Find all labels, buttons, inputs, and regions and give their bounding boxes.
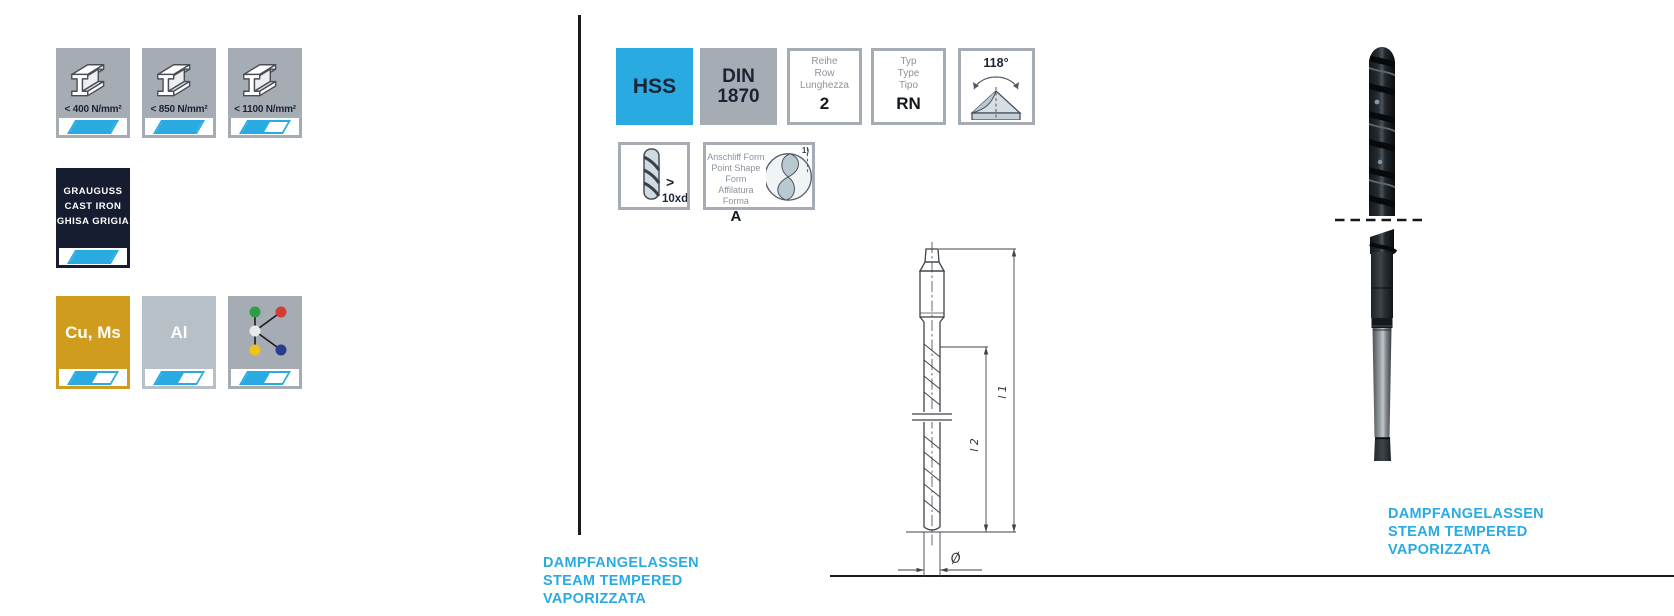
series-label-it: Lunghezza (790, 80, 859, 92)
suitability-mark (153, 120, 205, 134)
point-angle-badge: 118° (958, 48, 1035, 125)
material-grade-label: HSS (633, 75, 676, 99)
copper-brass-label: Cu, Ms (56, 296, 130, 369)
i-beam-icon (150, 55, 208, 101)
steel-grade-label: < 400 N/mm² (56, 104, 130, 115)
catalog-page: < 400 N/mm² < 850 N/mm² (0, 0, 1674, 616)
point-shape-badge: Anschliff Form Point Shape Form Affilatu… (703, 142, 815, 210)
suitability-mark (67, 120, 119, 134)
suitability-strip (59, 369, 127, 386)
drill-product-photo (1330, 40, 1440, 470)
aluminium-label: Al (142, 296, 216, 369)
suitability-mark (239, 120, 291, 134)
dim-label-l2: l 2 (968, 438, 981, 452)
i-beam-icon (236, 55, 294, 101)
suitability-mark (153, 371, 205, 385)
cast-iron-label-it: GHISA GRIGIA (56, 214, 130, 229)
type-label-it: Tipo (874, 80, 943, 92)
type-labels: Typ Type Tipo (874, 56, 943, 92)
suitability-strip (59, 118, 127, 135)
suitability-mark (67, 371, 119, 385)
steel-grade-label: < 1100 N/mm² (228, 104, 302, 115)
material-steel-850: < 850 N/mm² (142, 48, 216, 138)
drill-depth-badge: > 10xd (618, 142, 690, 210)
suitability-strip (231, 369, 299, 386)
finish-line-de: DAMPFANGELASSEN (543, 554, 699, 572)
suitability-mark (67, 250, 119, 264)
material-copper-brass: Cu, Ms (56, 296, 130, 389)
type-label-en: Type (874, 68, 943, 80)
material-group-diagram-icon (237, 302, 293, 360)
point-angle-value: 118° (983, 56, 1008, 70)
point-shape-label-de: Anschliff Form (706, 152, 766, 163)
din-number: 1870 (717, 87, 759, 107)
suitability-mark (239, 371, 291, 385)
finish-line-en: STEAM TEMPERED (543, 572, 699, 590)
din-standard-badge: DIN 1870 (700, 48, 777, 125)
point-angle-icon: 118° (962, 51, 1031, 120)
point-shape-labels: Anschliff Form Point Shape Form Affilatu… (706, 145, 766, 207)
dim-label-diameter: Ø (948, 550, 964, 568)
din-label: DIN (722, 67, 755, 87)
finish-line-it: VAPORIZZATA (1388, 541, 1544, 559)
series-label-en: Row (790, 68, 859, 80)
depth-ratio-value: 10xd (662, 193, 687, 205)
footnote-marker: 1) (802, 146, 809, 155)
suitability-strip (231, 118, 299, 135)
dim-label-l1: l 1 (996, 385, 1009, 399)
type-value: RN (874, 94, 943, 114)
point-shape-label-it: Affilatura Forma (706, 185, 766, 207)
i-beam-icon (64, 55, 122, 101)
type-label-de: Typ (874, 56, 943, 68)
series-labels: Reihe Row Lunghezza (790, 56, 859, 92)
cast-iron-labels: GRAUGUSS CAST IRON GHISA GRIGIA (56, 168, 130, 229)
material-steel-1100: < 1100 N/mm² (228, 48, 302, 138)
suitability-strip (145, 118, 213, 135)
series-value: 2 (790, 94, 859, 114)
finish-line-en: STEAM TEMPERED (1388, 523, 1544, 541)
material-steel-400: < 400 N/mm² (56, 48, 130, 138)
point-shape-label-en: Point Shape Form (706, 163, 766, 185)
finish-line-it: VAPORIZZATA (543, 590, 699, 608)
finish-line-de: DAMPFANGELASSEN (1388, 505, 1544, 523)
series-badge: Reihe Row Lunghezza 2 (787, 48, 862, 125)
steel-grade-label: < 850 N/mm² (142, 104, 216, 115)
suitability-strip (145, 369, 213, 386)
drill-depth-icon: > 10xd (621, 145, 687, 207)
finish-text-right: DAMPFANGELASSEN STEAM TEMPERED VAPORIZZA… (1388, 505, 1544, 559)
cast-iron-label-de: GRAUGUSS (56, 184, 130, 199)
point-shape-value: A (706, 208, 766, 225)
material-grade-badge: HSS (616, 48, 693, 125)
material-cast-iron: GRAUGUSS CAST IRON GHISA GRIGIA (56, 168, 130, 268)
dimension-drawing: l 1 l 2 Ø (840, 240, 1035, 585)
suitability-strip (59, 248, 127, 265)
material-aluminium: Al (142, 296, 216, 389)
type-badge: Typ Type Tipo RN (871, 48, 946, 125)
greater-than-symbol: > (666, 174, 674, 190)
cast-iron-label-en: CAST IRON (56, 199, 130, 214)
finish-text-left: DAMPFANGELASSEN STEAM TEMPERED VAPORIZZA… (543, 554, 699, 608)
material-group (228, 296, 302, 389)
series-label-de: Reihe (790, 56, 859, 68)
section-divider (578, 15, 581, 535)
